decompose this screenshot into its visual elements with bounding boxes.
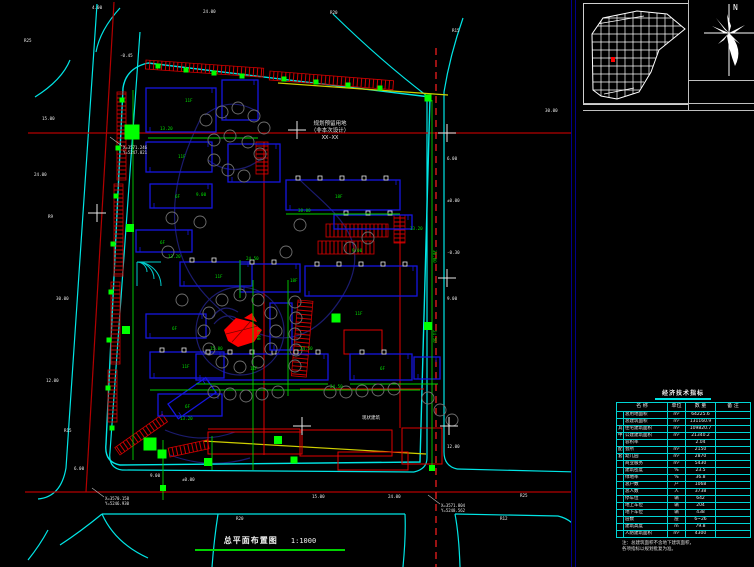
table-cell: 人防建筑面积 <box>624 531 668 538</box>
table-cell: 停车位 <box>624 496 668 503</box>
table-cell: 5430 <box>686 461 716 468</box>
table-cell: 建筑高度 <box>624 524 668 531</box>
table-cell: 地下车位 <box>624 510 668 517</box>
table-cell: m² <box>668 419 686 426</box>
table-cell <box>716 433 751 440</box>
table-cell: m <box>668 524 686 531</box>
tiny-label: R25 <box>520 493 528 498</box>
tiny-label: 9.00 <box>150 473 161 478</box>
entrance-mark <box>228 350 232 354</box>
drawing-title: 总平面布置图 <box>224 535 278 546</box>
table-cell <box>716 489 751 496</box>
table-row: 总人数人3738 <box>617 489 751 496</box>
table-cell: 3738 <box>686 489 716 496</box>
tiny-label: R20 <box>236 516 244 521</box>
tree-symbol <box>203 307 215 319</box>
landscape-square <box>240 74 245 79</box>
tree-symbol <box>216 356 228 368</box>
table-header-cell: 备 注 <box>716 403 751 412</box>
indicators-table-title: 经济技术指标 <box>614 388 752 397</box>
landscape-square <box>116 146 121 151</box>
tiny-label: 24.50 <box>432 330 437 343</box>
table-row: 建筑高度m79.8 <box>617 524 751 531</box>
table-cell: 2150 <box>686 447 716 454</box>
tiny-label: 15.00 <box>312 494 325 499</box>
tree-symbol <box>166 212 178 224</box>
table-row: 总户数户1068 <box>617 482 751 489</box>
frame-hline-north <box>688 80 754 81</box>
table-cell <box>617 510 624 517</box>
tiny-label: R12 <box>500 516 508 521</box>
table-cell <box>716 482 751 489</box>
table-cell <box>716 440 751 447</box>
table-cell: 总户数 <box>624 482 668 489</box>
table-cell <box>716 461 751 468</box>
tree-symbol <box>258 122 270 134</box>
tree-symbol <box>280 246 292 258</box>
table-cell <box>716 475 751 482</box>
entrance-mark <box>384 176 388 180</box>
tiny-label: 9.00 <box>352 248 363 253</box>
table-cell: 公建建筑面积 <box>624 433 668 440</box>
table-row: 人防建筑面积m²4300 <box>617 531 751 538</box>
tree-symbol <box>194 216 206 228</box>
landscape-square <box>110 426 115 431</box>
entrance-mark <box>272 260 276 264</box>
entrance-mark <box>403 262 407 266</box>
table-cell: 地上车位 <box>624 503 668 510</box>
entrance-mark <box>362 176 366 180</box>
existing-buildings <box>208 330 442 470</box>
tiny-label: 9.00 <box>196 192 207 197</box>
landscape-square <box>114 194 119 199</box>
landscape-square <box>378 86 383 91</box>
tree-symbol <box>238 170 250 182</box>
tiny-label: 11F <box>185 98 193 103</box>
table-header-cell: 名 称 <box>617 403 668 412</box>
landscape-square <box>332 314 341 323</box>
table-cell: 幼儿园 <box>624 454 668 461</box>
landscape-square <box>429 465 435 471</box>
table-cell: m² <box>668 447 686 454</box>
tiny-label: -0.45 <box>120 53 133 58</box>
table-cell: 套 <box>617 454 624 461</box>
table-header-cell: 数 量 <box>686 403 716 412</box>
tiny-label: 15.00 <box>42 116 55 121</box>
survey-grid-crosses <box>88 121 458 435</box>
entrance-mark <box>360 350 364 354</box>
table-row: 总用地面积m²64225.6 <box>617 412 751 419</box>
grid-cross <box>88 204 106 222</box>
tiny-label: R15 <box>452 28 460 33</box>
entrance-mark <box>182 348 186 352</box>
road-network <box>25 2 571 567</box>
table-cell: 2870 <box>686 454 716 461</box>
tree-symbol <box>265 343 277 355</box>
table-cell: m² <box>668 433 686 440</box>
landscape-square <box>120 98 125 103</box>
tree-symbol <box>252 294 264 306</box>
table-row: 商业服务m²5430 <box>617 461 751 468</box>
table-row: 套幼儿园m²2870 <box>617 454 751 461</box>
tiny-label: ±0.00 <box>182 477 195 482</box>
tree-symbol <box>240 390 252 402</box>
table-notes: 注：总建筑面积不含地下建筑面积， 各项指标以规划批复为准。 <box>622 541 752 553</box>
table-cell <box>716 524 751 531</box>
landscape-square <box>204 458 212 466</box>
tree-symbol <box>270 325 282 337</box>
entrance-mark <box>337 262 341 266</box>
table-cell: 总人数 <box>624 489 668 496</box>
landscape-square <box>274 436 282 444</box>
table-cell <box>617 419 624 426</box>
tiny-label: 24.00 <box>203 9 216 14</box>
table-cell: % <box>668 468 686 475</box>
table-cell: 1068 <box>686 482 716 489</box>
tiny-label: 18F <box>335 194 343 199</box>
tiny-label: 30.00 <box>56 296 69 301</box>
tree-symbol <box>198 325 210 337</box>
frame-hline-2 <box>583 110 754 111</box>
table-cell: % <box>668 475 686 482</box>
tiny-label: 13.20 <box>410 226 423 231</box>
site-location-marker <box>611 57 615 62</box>
table-row: 地下车位辆438 <box>617 510 751 517</box>
tree-symbol <box>224 130 236 142</box>
table-cell <box>716 517 751 524</box>
table-cell: 配 <box>617 447 624 454</box>
table-cell: 人 <box>668 489 686 496</box>
table-row: 地上车位辆204 <box>617 503 751 510</box>
frame-vline <box>688 0 689 110</box>
cad-viewport[interactable]: R254.0024.00R20R1530.006.00±0.00-0.309.0… <box>0 0 754 567</box>
intersection-coordinate-notes: X=3571.246Y=5247.821X=3570.158Y=5246.930… <box>92 137 466 513</box>
tiny-label: 11F <box>215 274 223 279</box>
table-cell <box>617 475 624 482</box>
landscape-square <box>109 290 114 295</box>
entrance-mark <box>316 350 320 354</box>
tiny-label: 24.00 <box>34 172 47 177</box>
table-cell: 36.8 <box>686 475 716 482</box>
table-cell <box>716 468 751 475</box>
table-cell: m² <box>668 461 686 468</box>
table-cell: 中 <box>617 433 624 440</box>
table-cell: 容积率 <box>624 440 668 447</box>
tiny-label: 15.00 <box>210 346 223 351</box>
tiny-label: 11F <box>182 364 190 369</box>
panel-separator-line <box>571 0 572 567</box>
tiny-label: 24.00 <box>388 494 401 499</box>
dimension-labels: R254.0024.00R20R1530.006.00±0.00-0.309.0… <box>24 5 558 521</box>
table-cell: 642 <box>686 496 716 503</box>
grid-cross <box>288 121 306 139</box>
tree-symbol <box>200 114 212 126</box>
table-cell <box>617 412 624 419</box>
table-cell: 64225.6 <box>686 412 716 419</box>
indicators-table: 名 称单位数 量备 注 总用地面积m²64225.6总建筑面积m²131160.… <box>616 402 751 538</box>
entrance-mark <box>160 348 164 352</box>
landscape-square <box>122 326 130 334</box>
title-underline-green <box>195 549 345 551</box>
svg-text:XX-XX: XX-XX <box>322 135 339 141</box>
tree-symbol <box>272 386 284 398</box>
landscape-square <box>212 71 217 76</box>
table-cell <box>617 468 624 475</box>
entrance-mark <box>212 258 216 262</box>
panel-separator-line2 <box>575 0 576 567</box>
table-cell <box>716 454 751 461</box>
svg-text:规划预留用地: 规划预留用地 <box>313 119 347 127</box>
tiny-label: 24.50 <box>330 384 343 389</box>
tiny-label: 12.00 <box>46 378 59 383</box>
table-cell: 辆 <box>668 496 686 503</box>
svg-text:Y=5246.930: Y=5246.930 <box>105 501 130 506</box>
landscape-square <box>291 457 298 464</box>
table-cell: 辆 <box>668 510 686 517</box>
table-row: 总建筑面积m²131160.9 <box>617 419 751 426</box>
svg-text:（非本次设计）: （非本次设计） <box>311 126 350 134</box>
building-outline <box>146 88 216 132</box>
tree-symbol <box>176 294 188 306</box>
table-cell <box>617 531 624 538</box>
table-cell <box>716 447 751 454</box>
table-cell <box>716 412 751 419</box>
reserved-parcel-label: 规划预留用地 （非本次设计） XX-XX <box>311 119 350 141</box>
table-cell: 131160.9 <box>686 419 716 426</box>
table-cell: 辆 <box>668 503 686 510</box>
landscape-square <box>126 224 134 232</box>
table-cell <box>716 503 751 510</box>
table-cell: 层 <box>668 517 686 524</box>
cyan-fan <box>137 262 161 286</box>
tree-symbol <box>265 307 277 319</box>
tiny-label: 24.50 <box>246 256 259 261</box>
landscape-square <box>158 450 167 459</box>
tiny-label: 38.00 <box>298 208 311 213</box>
drawing-scale: 1:1000 <box>291 537 316 545</box>
table-cell <box>617 489 624 496</box>
table-cell: 总建筑面积 <box>624 419 668 426</box>
tree-symbol <box>446 414 458 426</box>
landscape-square <box>424 322 432 330</box>
existing-building-outline <box>338 452 408 470</box>
entrance-mark <box>315 262 319 266</box>
table-cell <box>716 419 751 426</box>
table-cell <box>716 426 751 433</box>
sheet-title-block: 总平面布置图 1:1000 <box>180 528 360 551</box>
entrance-mark <box>382 350 386 354</box>
table-cell: m² <box>668 412 686 419</box>
table-cell: 79.8 <box>686 524 716 531</box>
tiny-label: 12.00 <box>447 444 460 449</box>
landscape-square <box>106 386 111 391</box>
table-cell: 21340.2 <box>686 433 716 440</box>
building-outline <box>286 180 400 210</box>
grid-cross <box>438 124 456 142</box>
table-cell <box>716 496 751 503</box>
landscape-square <box>160 485 166 491</box>
table-cell: 商业服务 <box>624 461 668 468</box>
landscape-square <box>125 125 140 140</box>
entrance-mark <box>318 176 322 180</box>
table-cell: m² <box>668 426 686 433</box>
tiny-label: R15 <box>64 428 72 433</box>
landscape-square <box>282 77 287 82</box>
site-plan-drawing[interactable]: R254.0024.00R20R1530.006.00±0.00-0.309.0… <box>0 0 571 567</box>
table-cell: 6~26 <box>686 517 716 524</box>
table-cell <box>617 461 624 468</box>
entrance-mark <box>190 258 194 262</box>
inset-map-streets <box>584 4 688 104</box>
tiny-label: R25 <box>24 38 32 43</box>
tree-symbol <box>294 219 306 231</box>
table-cell <box>617 440 624 447</box>
frame-hline-1 <box>583 103 754 104</box>
tree-symbol <box>356 385 368 397</box>
coordinate-note: X=3571.804Y=5248.562 <box>428 495 466 513</box>
table-row: 绿地率%36.8 <box>617 475 751 482</box>
tiny-label: 24.50 <box>300 346 313 351</box>
table-row: 建筑密度%23.5 <box>617 468 751 475</box>
table-cell: 2.04 <box>686 440 716 447</box>
tiny-label: 11F <box>250 366 258 371</box>
table-cell: 绿地率 <box>624 475 668 482</box>
tiny-label: 11F <box>178 154 186 159</box>
landscape-square <box>425 95 432 102</box>
table-cell: m² <box>668 454 686 461</box>
north-arrow: N <box>688 0 754 100</box>
table-cell: 户 <box>668 482 686 489</box>
landscape-square <box>346 83 351 88</box>
tree-symbol <box>232 102 244 114</box>
table-cell: 23.5 <box>686 468 716 475</box>
table-row: 中公建建筑面积m²21340.2 <box>617 433 751 440</box>
table-cell: m² <box>668 531 686 538</box>
tiny-label: 13.20 <box>168 254 181 259</box>
table-cell <box>668 440 686 447</box>
table-cell <box>617 482 624 489</box>
tiny-label: 13.20 <box>160 126 173 131</box>
svg-text:Y=5248.562: Y=5248.562 <box>441 508 466 513</box>
tiny-label: 4.00 <box>92 5 103 10</box>
svg-text:Y=5247.821: Y=5247.821 <box>123 150 148 155</box>
building-outline <box>270 303 292 350</box>
grid-cross <box>438 269 456 287</box>
tiny-label: 6.00 <box>447 156 458 161</box>
tiny-label: 30.00 <box>432 250 437 263</box>
table-cell: 住宅建筑面积 <box>624 426 668 433</box>
entrance-mark <box>340 176 344 180</box>
table-cell: 会所 <box>624 447 668 454</box>
table-cell <box>617 503 624 510</box>
title-underline <box>655 398 711 400</box>
landscape-square <box>144 438 157 451</box>
entrance-mark <box>296 176 300 180</box>
tiny-label: 6F <box>185 404 191 409</box>
table-cell <box>716 531 751 538</box>
table-cell <box>617 524 624 531</box>
table-cell: 其 <box>617 426 624 433</box>
preserved-building-label: 现状建筑 <box>362 414 380 421</box>
tiny-label: 6F <box>175 194 181 199</box>
table-cell: 438 <box>686 510 716 517</box>
landscape-square <box>314 80 319 85</box>
table-row: 容积率2.04 <box>617 440 751 447</box>
tree-symbol <box>216 294 228 306</box>
north-label: N <box>733 3 738 12</box>
landscape-square <box>156 64 161 69</box>
tiny-label: 9.00 <box>447 296 458 301</box>
table-row: 停车位辆642 <box>617 496 751 503</box>
table-cell: 204 <box>686 503 716 510</box>
tiny-label: ±0.00 <box>447 198 460 203</box>
table-cell: 层数 <box>624 517 668 524</box>
tiny-label: 30.00 <box>545 108 558 113</box>
tiny-label: 6F <box>172 326 178 331</box>
tiny-label: 18F <box>290 278 298 283</box>
landscape-square <box>111 242 116 247</box>
tiny-label: 6F <box>380 366 386 371</box>
indicators-table-block: 经济技术指标 名 称单位数 量备 注 总用地面积m²64225.6总建筑面积m²… <box>614 388 752 553</box>
table-row: 层数层6~26 <box>617 517 751 524</box>
tiny-label: -0.30 <box>447 250 460 255</box>
tiny-label: R9 <box>48 214 54 219</box>
entrance-mark <box>359 262 363 266</box>
landscape-square <box>107 338 112 343</box>
table-cell: 建筑密度 <box>624 468 668 475</box>
table-cell <box>716 510 751 517</box>
tiny-label: 11F <box>355 311 363 316</box>
tree-symbol <box>234 361 246 373</box>
tiny-label: 13.20 <box>180 416 193 421</box>
table-cell <box>617 496 624 503</box>
landscape-square <box>184 68 189 73</box>
table-cell <box>617 517 624 524</box>
table-cell: 总用地面积 <box>624 412 668 419</box>
table-cell: 109820.7 <box>686 426 716 433</box>
red-linework <box>208 142 424 455</box>
table-cell: 4300 <box>686 531 716 538</box>
entrance-mark <box>381 262 385 266</box>
table-row: 其住宅建筑面积m²109820.7 <box>617 426 751 433</box>
grid-cross <box>440 417 458 435</box>
tree-symbol <box>208 386 220 398</box>
tiny-label: 6.00 <box>256 330 261 341</box>
tiny-label: 6F <box>160 240 166 245</box>
table-row: 配会所m²2150 <box>617 447 751 454</box>
tiny-label: 6.00 <box>74 466 85 471</box>
coordinate-note: X=3570.158Y=5246.930 <box>92 488 130 506</box>
entrance-mark <box>294 350 298 354</box>
table-header-cell: 单位 <box>668 403 686 412</box>
tiny-label: R20 <box>330 10 338 15</box>
tree-symbol <box>208 134 220 146</box>
